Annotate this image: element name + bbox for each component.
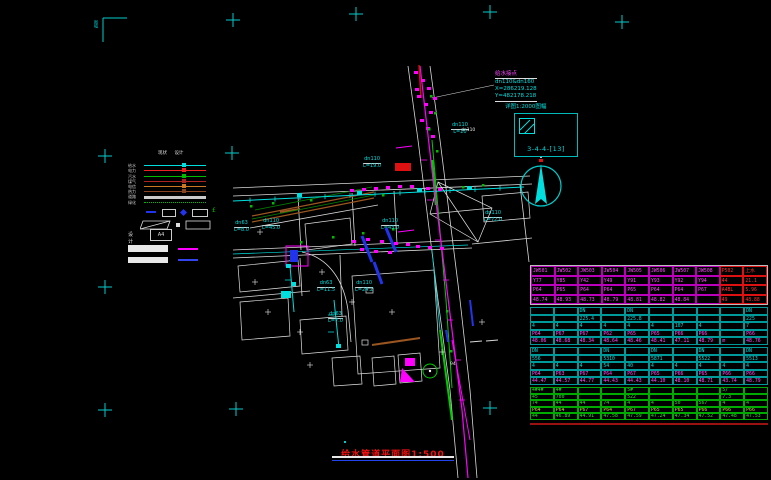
legend: 现状 设计 给水电力污水煤气电信热力道路绿化 £ 设计 A4 [126, 146, 238, 268]
table-cell: 49 [720, 295, 744, 305]
table-cell: 225.8 [625, 315, 649, 323]
table-cell: P66 [673, 330, 697, 338]
table-row: 5565310587155225513 [530, 355, 768, 363]
table-cell: 5522 [697, 355, 721, 363]
table-cell: Y91 [625, 276, 649, 286]
table-cell: 47.58 [601, 413, 625, 420]
table-cell: 5.96 [743, 285, 767, 295]
table-cell: P65 [649, 330, 673, 338]
table-cell: P64 [601, 370, 625, 378]
table-section: DNDNDN225.4225.822544444410747P64P67P67P… [530, 307, 768, 345]
table-cell: 74 [601, 400, 625, 407]
table-cell: 40 [625, 362, 649, 370]
table-cell: 48.84 [673, 295, 697, 305]
design-label: 设计 [128, 231, 133, 245]
junction-title: 给水接点 [495, 71, 537, 79]
table-cell: 48.41 [649, 337, 673, 345]
table-cell: 4 [530, 362, 554, 370]
table-cell: Y49 [602, 276, 626, 286]
table-cell [697, 315, 721, 323]
table-row: P64P64P67P64P67P65P65P66P66P66 [530, 407, 768, 414]
table-cell: DN [530, 347, 554, 355]
table-cell [720, 330, 744, 338]
table-cell [601, 307, 625, 315]
table-cell [697, 307, 721, 315]
frame-corner-mark [103, 18, 127, 42]
table-cell: 54 [601, 362, 625, 370]
table-cell: 107 [673, 322, 697, 330]
table-cell: A4BL [720, 285, 744, 295]
red-features [395, 65, 421, 171]
table-cell [744, 394, 768, 401]
table-cell: 48.10 [673, 377, 697, 385]
table-cell: P66 [744, 407, 768, 414]
hatch-swatch-icon [519, 118, 535, 134]
table-cell: P66 [697, 330, 721, 338]
table-cell: 4 [554, 362, 578, 370]
table-row: P64P65P64P64P65P64P64P67A4BL5.96 [531, 285, 767, 295]
table-cell: 47.48 [720, 413, 744, 420]
table-cell: Y94 [696, 276, 720, 286]
table-cell: 4 [625, 400, 649, 407]
table-cell [625, 347, 649, 355]
table-cell: 4 [744, 400, 768, 407]
pipe-label: dn110L=43.0 [381, 219, 399, 232]
table-cell [720, 307, 744, 315]
table-cell [578, 355, 602, 363]
table-cell [530, 315, 554, 323]
table-cell: P66 [744, 330, 768, 338]
table-cell: 46.89 [554, 413, 578, 420]
table-cell: P66 [673, 370, 697, 378]
table-cell: P66 [697, 407, 721, 414]
table-cell [601, 387, 625, 394]
table-cell: JW502 [555, 266, 579, 276]
table-cell [649, 394, 673, 401]
table-cell: 7 [744, 322, 768, 330]
table-cell [673, 355, 697, 363]
table-cell: Y85 [555, 276, 579, 286]
table-cell: 4 [720, 400, 744, 407]
junction-pipes: dn110&dn160 [495, 79, 537, 86]
table-cell: P67 [625, 407, 649, 414]
table-row: 44444410747 [530, 322, 768, 330]
table-cell: 48.79 [744, 377, 768, 385]
table-cell: 48.79 [697, 337, 721, 345]
table-cell: 4 [554, 322, 578, 330]
pipe-label: dn63L=7.0 [328, 312, 343, 325]
table-cell: DN [744, 307, 768, 315]
detail-reference-box: 3-4-4-[13] [514, 113, 578, 157]
table-cell: 4 [625, 322, 649, 330]
table-cell: P67 [578, 330, 602, 338]
table-cell: 47.59 [625, 413, 649, 420]
table-cell: 48.46 [625, 337, 649, 345]
legend-headers: 现状 设计 [158, 150, 189, 156]
table-cell: P67 [578, 407, 602, 414]
table-cell: 48.88 [743, 295, 767, 305]
table-cell: P64 [531, 285, 555, 295]
table-section: DNDNDNDNDN556531058715522551344454404444… [530, 347, 768, 385]
table-cell: P64 [602, 285, 626, 295]
table-cell: 21.1 [743, 276, 767, 286]
table-cell [578, 394, 602, 401]
title-underline-blue [332, 460, 454, 461]
table-cell: DN [625, 307, 649, 315]
pipe-label: dn110L=72.0 [484, 211, 502, 224]
table-cell: Y77 [531, 276, 555, 286]
pipe-label: dn110L=19.0 [363, 157, 381, 170]
table-cell: DN [697, 347, 721, 355]
table-cell: P62 [601, 330, 625, 338]
map-text: 94 [450, 363, 456, 368]
table-cell [673, 315, 697, 323]
table-cell: P66 [744, 370, 768, 378]
table-cell: 44.91 [578, 413, 602, 420]
table-cell: 44.10 [649, 377, 673, 385]
title-tick [344, 441, 346, 443]
magenta-block [405, 358, 415, 366]
table-cell: P64 [530, 370, 554, 378]
blue-dash-icon [146, 211, 156, 213]
table-cell: DN [649, 347, 673, 355]
table-cell: 48.71 [697, 377, 721, 385]
table-row: 48.0648.6848.3448.6448.4648.4147.1148.79… [530, 337, 768, 345]
table-cell: 4 [578, 322, 602, 330]
table-cell: 44 [578, 400, 602, 407]
table-row: DNDNDN [530, 307, 768, 315]
table-cell: 48.79 [602, 295, 626, 305]
table-cell: 47.11 [673, 337, 697, 345]
table-row: P64P63P67P64P67P65P66P65P66P66 [530, 370, 768, 378]
drawing-title: 给水管道平面图1:500 [330, 442, 456, 461]
table-cell: 5871 [649, 355, 673, 363]
table-row: 225.4225.8225 [530, 315, 768, 323]
table-cell: 556 [530, 355, 554, 363]
table-cell: P64 [530, 330, 554, 338]
table-cell: 4# [554, 387, 578, 394]
table-cell [673, 387, 697, 394]
table-cell [649, 307, 673, 315]
table-cell: P65 [697, 370, 721, 378]
table-cell: 48.82 [649, 295, 673, 305]
manhole-center-dot [429, 370, 431, 372]
table-cell [578, 387, 602, 394]
blue-diamond-icon [180, 209, 187, 216]
table-cell: 44.47 [530, 377, 554, 385]
junction-y-coordinate: Y=482178.218 [495, 93, 537, 100]
table-cell: 567 [697, 400, 721, 407]
table-cell: P64 [530, 407, 554, 414]
table-cell [720, 315, 744, 323]
table-row: 44.4744.5744.7744.4344.4344.1048.1048.71… [530, 377, 768, 385]
legend-row: 绿化 [126, 201, 238, 206]
junction-annotation: 给水接点 dn110&dn160 X=286219.128 Y=482178.2… [495, 71, 537, 101]
legend-symbols-row: £ [126, 208, 238, 216]
table-cell: JW508 [696, 266, 720, 276]
table-cell [649, 387, 673, 394]
table-cell: 5# [625, 387, 649, 394]
table-cell: 48.93 [555, 295, 579, 305]
table-cell: 225 [744, 315, 768, 323]
table-row: 444544044444 [530, 362, 768, 370]
table-cell: P65 [673, 407, 697, 414]
table-cell: 44 [720, 276, 744, 286]
table-cell: JW505 [625, 266, 649, 276]
table-row: 74444474445056744 [530, 400, 768, 407]
table-cell: 5513 [744, 355, 768, 363]
title-underline [332, 456, 454, 458]
table-row: 4446.8944.9147.5847.5947.2447.3447.5247.… [530, 413, 768, 420]
table-cell: P66 [720, 407, 744, 414]
table-cell: 47.24 [649, 413, 673, 420]
paper-size-badge: A4 [150, 229, 172, 241]
table-cell: P64 [673, 285, 697, 295]
pipe-label: dn110L=45.0 [262, 219, 280, 232]
table-cell: 44 [554, 400, 578, 407]
legend-header-design: 设计 [174, 151, 183, 156]
table-cell: JW501 [531, 266, 555, 276]
table-cell: 44.77 [578, 377, 602, 385]
table-cell: Y93 [649, 276, 673, 286]
detail-reference-label: 3-4-4-[13] [515, 145, 577, 153]
table-cell: DN [601, 347, 625, 355]
table-cell [649, 315, 673, 323]
table-cell: 48.73 [578, 295, 602, 305]
table-cell: P64 [554, 407, 578, 414]
table-cell: P64 [649, 285, 673, 295]
table-row: DNDNDNDNDN [530, 347, 768, 355]
leader-line [432, 85, 494, 98]
table-cell [720, 322, 744, 330]
table-cell: 4 [649, 362, 673, 370]
table-cell: 700 [554, 394, 578, 401]
table-cell: 4 [673, 362, 697, 370]
table-cell: 4#4# [530, 387, 554, 394]
table-row: P64P67P67P62P65P65P66P66P66 [530, 330, 768, 338]
table-cell: P65 [625, 285, 649, 295]
table-cell [673, 347, 697, 355]
table-cell: 5310 [601, 355, 625, 363]
results-table: JW501JW502JW503JW504JW505JW506JW507JW508… [530, 265, 768, 422]
table-cell: P64 [578, 285, 602, 295]
table-cell [578, 347, 602, 355]
table-cell [601, 394, 625, 401]
road-bar-sample [128, 245, 168, 252]
table-cell: 47.34 [673, 413, 697, 420]
table-cell [530, 307, 554, 315]
table-cell [673, 307, 697, 315]
table-row: 457005227.3 [530, 394, 768, 401]
table-cell [554, 347, 578, 355]
table-cell: P65 [625, 330, 649, 338]
table-cell [744, 387, 768, 394]
table-cell: P502 [720, 266, 744, 276]
table-cell: 225.4 [578, 315, 602, 323]
table-cell: 7.3 [720, 394, 744, 401]
roads [233, 66, 532, 478]
table-cell: 50 [673, 400, 697, 407]
table-cell [697, 394, 721, 401]
road-bar-sample2 [128, 257, 168, 263]
table-cell: 4 [697, 362, 721, 370]
table-cell: JW503 [578, 266, 602, 276]
north-arrow [521, 156, 561, 206]
legend-header-existing: 现状 [158, 151, 167, 156]
table-cell: P67 [625, 370, 649, 378]
junction-x-coordinate: X=286219.128 [495, 86, 537, 93]
table-cell: 45 [530, 394, 554, 401]
table-cell: 44.57 [554, 377, 578, 385]
blue-fill [290, 250, 298, 262]
table-section: 4#4#4#5#5/457005227.374444474445056744P6… [530, 387, 768, 420]
table-cell: P65 [649, 370, 673, 378]
table-cell: 5/ [720, 387, 744, 394]
table-cell: 47.53 [744, 413, 768, 420]
table-cell: 74 [530, 400, 554, 407]
table-cell: DN [744, 347, 768, 355]
table-cell [720, 347, 744, 355]
table-cell [697, 387, 721, 394]
table-cell [554, 307, 578, 315]
table-row: JW501JW502JW503JW504JW505JW506JW507JW508… [531, 266, 767, 276]
table-cell: P64 [601, 407, 625, 414]
table-row: 48.7448.9348.7348.7948.8148.8248.844948.… [531, 295, 767, 305]
table-cell [601, 315, 625, 323]
table-cell: 48.64 [601, 337, 625, 345]
table-cell: JW507 [673, 266, 697, 276]
frame-corner-text: 图幅 [94, 20, 98, 28]
green-symbol-icon: £ [212, 207, 216, 214]
table-cell: P63 [554, 370, 578, 378]
table-cell: m [720, 337, 744, 345]
table-cell: P67 [696, 285, 720, 295]
table-cell: 4 [697, 322, 721, 330]
table-cell: Y42 [578, 276, 602, 286]
table-section: JW501JW502JW503JW504JW505JW506JW507JW508… [530, 265, 768, 305]
table-cell [720, 355, 744, 363]
table-cell: 48.76 [744, 337, 768, 345]
pipe-label: dn110L=24.2 [355, 281, 373, 294]
table-cell: P66 [720, 370, 744, 378]
table-cell: 48.81 [625, 295, 649, 305]
table-cell: 48.06 [530, 337, 554, 345]
map-text: dn110 [461, 129, 475, 134]
blue-line-sample [178, 259, 198, 261]
table-cell: 上水 [743, 266, 767, 276]
table-cell [554, 315, 578, 323]
table-cell: 4 [744, 362, 768, 370]
table-row: Y77Y85Y42Y49Y91Y93Y92Y944421.1 [531, 276, 767, 286]
table-cell: 44.43 [625, 377, 649, 385]
table-cell: 48.34 [578, 337, 602, 345]
detail-caption: 详图1:2000图幅 [505, 102, 546, 110]
drawing-title-text: 给水管道平面图1:500 [341, 450, 445, 460]
table-cell: P67 [578, 370, 602, 378]
table-cell: P67 [554, 330, 578, 338]
table-cell: P65 [555, 285, 579, 295]
table-cell: 4 [720, 362, 744, 370]
pipe-label: dn63L=11.5 [317, 281, 335, 294]
table-cell: JW504 [602, 266, 626, 276]
table-cell: 44.43 [601, 377, 625, 385]
table-cell: DN [578, 307, 602, 315]
table-cell [673, 394, 697, 401]
cad-viewport[interactable]: dn63L=8.0dn110L=45.0dn110L=43.0dn63L=11.… [0, 0, 771, 480]
table-cell: 43.74 [720, 377, 744, 385]
table-cell [696, 295, 720, 305]
table-cell: 4 [578, 362, 602, 370]
table-cell: 48.74 [531, 295, 555, 305]
table-row: 4#4#4#5#5/ [530, 387, 768, 394]
magenta-line-sample [178, 248, 198, 250]
table-cell: JW506 [649, 266, 673, 276]
table-cell: 48.68 [554, 337, 578, 345]
table-cell: Y92 [673, 276, 697, 286]
table-cell: 44 [530, 413, 554, 420]
table-cell [625, 355, 649, 363]
table-cell: 522 [625, 394, 649, 401]
table-cell: 4 [649, 322, 673, 330]
table-cell: 4 [530, 322, 554, 330]
table-cell: 4 [601, 322, 625, 330]
table-cell: 4 [649, 400, 673, 407]
table-cell [554, 355, 578, 363]
table-cell: 47.52 [697, 413, 721, 420]
table-cell: P65 [649, 407, 673, 414]
